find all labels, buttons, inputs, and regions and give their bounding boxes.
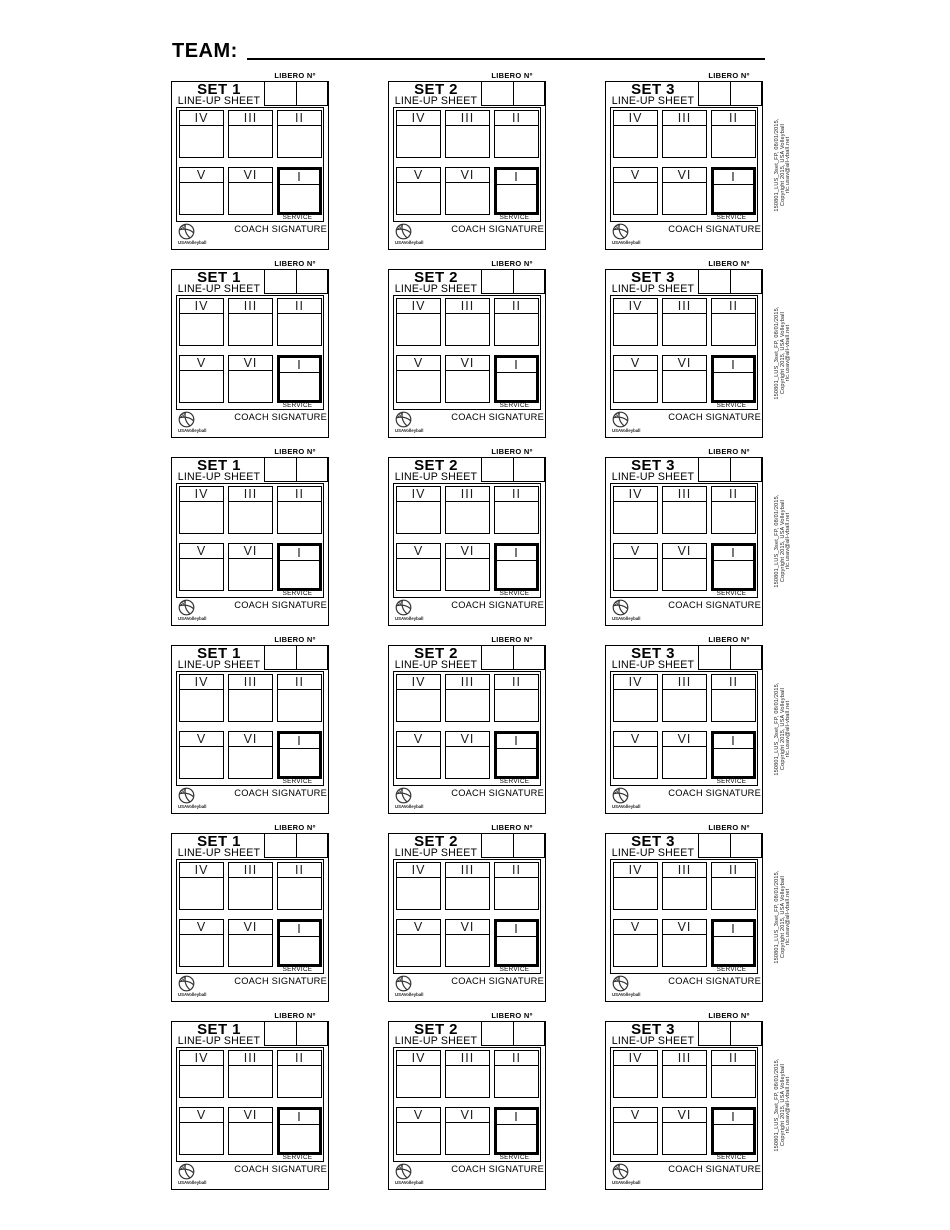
card-footer: USAVolleyball COACH SIGNATURE — [172, 598, 328, 625]
position-cell-i-service: I — [277, 731, 322, 779]
usa-volleyball-logo-text: USAVolleyball — [178, 616, 220, 621]
position-cell-i-service: I — [494, 919, 539, 967]
position-label-vi: VI — [663, 168, 706, 183]
side-note-line3: rlc.usav@all-vball.net — [786, 458, 792, 624]
card-header: SET 3 LINE-UP SHEET — [606, 646, 762, 670]
court-grid: IV III II V VI — [393, 859, 541, 974]
libero-no-label: LIBERO Nº — [263, 71, 327, 81]
libero-number-boxes — [698, 1021, 762, 1046]
position-cell-iv: IV — [396, 862, 441, 910]
position-label-i: I — [280, 358, 319, 373]
libero-no-label: LIBERO Nº — [697, 1011, 761, 1021]
coach-signature-label: COACH SIGNATURE — [668, 224, 761, 234]
lineup-card-body: SET 3 LINE-UP SHEET IV III — [605, 1021, 763, 1190]
position-cell-iv: IV — [396, 110, 441, 158]
card-header: SET 3 LINE-UP SHEET — [606, 82, 762, 106]
lineup-card-body: SET 2 LINE-UP SHEET IV III — [388, 269, 546, 438]
position-label-vi: VI — [663, 356, 706, 371]
position-cell-v: V — [179, 919, 224, 967]
position-cell-ii: II — [711, 1050, 756, 1098]
position-label-i: I — [714, 170, 753, 185]
service-label: SERVICE — [274, 1154, 321, 1161]
side-note-line3: rlc.usav@all-vball.net — [786, 834, 792, 1000]
lineup-card-body: SET 3 LINE-UP SHEET IV III — [605, 833, 763, 1002]
card-header: SET 1 LINE-UP SHEET — [172, 646, 328, 670]
court-grid: IV III II V VI — [176, 483, 324, 598]
libero-number-cell-1 — [482, 646, 514, 669]
position-cell-ii: II — [494, 298, 539, 346]
position-label-iii: III — [663, 1051, 706, 1066]
position-cell-v: V — [179, 1107, 224, 1155]
libero-number-cell-1 — [699, 270, 731, 293]
volleyball-logo-icon — [612, 411, 629, 428]
coach-signature-label: COACH SIGNATURE — [234, 224, 327, 234]
lineup-card: LIBERO Nº SET 1 LINE-UP SHEET IV — [171, 259, 329, 438]
position-cell-iv: IV — [613, 110, 658, 158]
court-row-front: V VI I — [396, 731, 539, 779]
usa-volleyball-logo-text: USAVolleyball — [395, 428, 437, 433]
libero-number-boxes — [264, 833, 328, 858]
libero-number-boxes — [698, 269, 762, 294]
position-label-iii: III — [229, 1051, 272, 1066]
lineup-card-body: SET 1 LINE-UP SHEET IV III — [171, 645, 329, 814]
libero-number-boxes — [264, 457, 328, 482]
court-grid: IV III II V VI — [610, 859, 758, 974]
coach-signature-label: COACH SIGNATURE — [668, 600, 761, 610]
usa-volleyball-logo-text: USAVolleyball — [395, 616, 437, 621]
court-grid: IV III II V VI — [610, 107, 758, 222]
side-note-line3: rlc.usav@all-vball.net — [786, 270, 792, 436]
card-header: SET 1 LINE-UP SHEET — [172, 270, 328, 294]
position-label-iii: III — [663, 675, 706, 690]
service-label: SERVICE — [274, 214, 321, 221]
position-label-vi: VI — [446, 1108, 489, 1123]
lineup-sheet-label: LINE-UP SHEET — [392, 472, 480, 483]
lineup-card: LIBERO Nº SET 3 LINE-UP SHEET IV — [605, 447, 763, 626]
lineup-sheet-label: LINE-UP SHEET — [609, 284, 697, 295]
side-note-line3: rlc.usav@all-vball.net — [786, 1022, 792, 1188]
position-cell-v: V — [179, 167, 224, 215]
card-header: SET 1 LINE-UP SHEET — [172, 1022, 328, 1046]
card-footer: USAVolleyball COACH SIGNATURE — [606, 1162, 762, 1189]
card-grid: LIBERO Nº SET 1 LINE-UP SHEET IV — [171, 71, 763, 1199]
libero-number-boxes — [698, 457, 762, 482]
lineup-sheet-label: LINE-UP SHEET — [609, 1036, 697, 1047]
position-cell-v: V — [613, 543, 658, 591]
usa-volleyball-logo-text: USAVolleyball — [178, 240, 220, 245]
position-cell-vi: VI — [445, 731, 490, 779]
position-label-vi: VI — [663, 920, 706, 935]
position-label-i: I — [280, 546, 319, 561]
usa-volleyball-logo-text: USAVolleyball — [395, 240, 437, 245]
position-cell-i-service: I — [494, 167, 539, 215]
card-header: SET 3 LINE-UP SHEET — [606, 270, 762, 294]
usa-volleyball-logo-text: USAVolleyball — [612, 1180, 654, 1185]
position-cell-iii: III — [662, 1050, 707, 1098]
coach-signature-label: COACH SIGNATURE — [234, 1164, 327, 1174]
position-cell-v: V — [179, 543, 224, 591]
position-label-ii: II — [712, 1051, 755, 1066]
position-label-v: V — [614, 732, 657, 747]
position-cell-iii: III — [662, 862, 707, 910]
court-grid: IV III II V VI — [610, 483, 758, 598]
lineup-card: LIBERO Nº SET 1 LINE-UP SHEET IV — [171, 447, 329, 626]
position-label-ii: II — [712, 299, 755, 314]
position-cell-vi: VI — [662, 731, 707, 779]
position-label-v: V — [397, 168, 440, 183]
libero-number-boxes — [698, 833, 762, 858]
service-label: SERVICE — [491, 966, 538, 973]
lineup-card-body: SET 1 LINE-UP SHEET IV III — [171, 269, 329, 438]
service-label: SERVICE — [491, 778, 538, 785]
card-title-block: SET 1 LINE-UP SHEET — [175, 647, 263, 671]
sheet-row: LIBERO Nº SET 1 LINE-UP SHEET IV — [171, 447, 763, 626]
position-label-iv: IV — [397, 299, 440, 314]
usa-volleyball-logo-text: USAVolleyball — [612, 804, 654, 809]
position-label-v: V — [614, 1108, 657, 1123]
position-label-iii: III — [229, 111, 272, 126]
position-cell-iii: III — [228, 862, 273, 910]
position-cell-v: V — [396, 167, 441, 215]
coach-signature-label: COACH SIGNATURE — [234, 976, 327, 986]
lineup-card: LIBERO Nº SET 2 LINE-UP SHEET IV — [388, 635, 546, 814]
position-label-ii: II — [278, 111, 321, 126]
service-label: SERVICE — [708, 214, 755, 221]
court-row-back: IV III II — [613, 862, 756, 910]
libero-number-boxes — [481, 1021, 545, 1046]
position-label-i: I — [497, 358, 536, 373]
position-label-v: V — [614, 920, 657, 935]
usa-volleyball-logo: USAVolleyball — [178, 975, 220, 997]
position-cell-ii: II — [711, 110, 756, 158]
position-label-i: I — [280, 1110, 319, 1125]
service-label: SERVICE — [708, 590, 755, 597]
position-cell-iii: III — [228, 486, 273, 534]
coach-signature-label: COACH SIGNATURE — [451, 788, 544, 798]
position-label-iv: IV — [180, 299, 223, 314]
position-label-i: I — [714, 358, 753, 373]
court-row-front: V VI I — [613, 1107, 756, 1155]
position-label-iv: IV — [180, 1051, 223, 1066]
court-row-front: V VI I — [396, 543, 539, 591]
court-row-back: IV III II — [396, 298, 539, 346]
libero-number-boxes — [698, 81, 762, 106]
lineup-sheet-label: LINE-UP SHEET — [392, 848, 480, 859]
position-label-iii: III — [663, 487, 706, 502]
court-row-front: V VI I — [179, 167, 322, 215]
volleyball-logo-icon — [612, 223, 629, 240]
position-cell-iii: III — [228, 1050, 273, 1098]
position-label-vi: VI — [446, 920, 489, 935]
position-label-iii: III — [446, 487, 489, 502]
lineup-sheet-label: LINE-UP SHEET — [175, 848, 263, 859]
lineup-card-body: SET 2 LINE-UP SHEET IV III — [388, 81, 546, 250]
position-label-i: I — [714, 546, 753, 561]
lineup-card: LIBERO Nº SET 3 LINE-UP SHEET IV — [605, 71, 763, 250]
usa-volleyball-logo: USAVolleyball — [395, 975, 437, 997]
court-row-front: V VI I — [396, 355, 539, 403]
lineup-card-body: SET 1 LINE-UP SHEET IV III — [171, 833, 329, 1002]
position-label-vi: VI — [663, 544, 706, 559]
position-label-ii: II — [495, 1051, 538, 1066]
volleyball-logo-icon — [395, 599, 412, 616]
lineup-sheet-label: LINE-UP SHEET — [609, 660, 697, 671]
position-cell-ii: II — [494, 486, 539, 534]
lineup-card: LIBERO Nº SET 3 LINE-UP SHEET IV — [605, 1011, 763, 1190]
position-label-v: V — [180, 356, 223, 371]
card-header: SET 2 LINE-UP SHEET — [389, 646, 545, 670]
card-header: SET 2 LINE-UP SHEET — [389, 82, 545, 106]
position-cell-ii: II — [277, 298, 322, 346]
position-label-vi: VI — [229, 356, 272, 371]
court-row-front: V VI I — [179, 543, 322, 591]
card-footer: USAVolleyball COACH SIGNATURE — [389, 974, 545, 1001]
court-row-back: IV III II — [396, 674, 539, 722]
libero-no-label: LIBERO Nº — [263, 635, 327, 645]
position-label-v: V — [397, 356, 440, 371]
position-cell-vi: VI — [228, 543, 273, 591]
lineup-card: LIBERO Nº SET 1 LINE-UP SHEET IV — [171, 635, 329, 814]
service-label: SERVICE — [491, 402, 538, 409]
lineup-card-body: SET 3 LINE-UP SHEET IV III — [605, 269, 763, 438]
court-row-front: V VI I — [613, 543, 756, 591]
position-cell-iii: III — [662, 298, 707, 346]
position-label-v: V — [180, 920, 223, 935]
card-footer: USAVolleyball COACH SIGNATURE — [606, 786, 762, 813]
sheet-row: LIBERO Nº SET 1 LINE-UP SHEET IV — [171, 1011, 763, 1190]
position-label-ii: II — [278, 487, 321, 502]
position-cell-iv: IV — [613, 862, 658, 910]
position-label-ii: II — [495, 111, 538, 126]
card-title-block: SET 2 LINE-UP SHEET — [392, 1023, 480, 1047]
position-label-v: V — [397, 544, 440, 559]
position-cell-ii: II — [494, 862, 539, 910]
position-label-iv: IV — [397, 1051, 440, 1066]
libero-number-cell-2 — [514, 1022, 545, 1045]
lineup-card: LIBERO Nº SET 3 LINE-UP SHEET IV — [605, 635, 763, 814]
card-header: SET 2 LINE-UP SHEET — [389, 834, 545, 858]
lineup-sheet-label: LINE-UP SHEET — [175, 660, 263, 671]
copyright-side-note: 150801_LUS_3set_FP, 08/01/2015, Copyrigh… — [775, 834, 793, 1000]
position-cell-vi: VI — [445, 355, 490, 403]
usa-volleyball-logo: USAVolleyball — [612, 599, 654, 621]
position-cell-iv: IV — [179, 862, 224, 910]
coach-signature-label: COACH SIGNATURE — [668, 976, 761, 986]
lineup-card: LIBERO Nº SET 2 LINE-UP SHEET IV — [388, 1011, 546, 1190]
lineup-sheet-label: LINE-UP SHEET — [392, 284, 480, 295]
court-row-front: V VI I — [179, 731, 322, 779]
volleyball-logo-icon — [612, 599, 629, 616]
position-cell-vi: VI — [662, 543, 707, 591]
coach-signature-label: COACH SIGNATURE — [451, 224, 544, 234]
position-label-v: V — [180, 1108, 223, 1123]
usa-volleyball-logo: USAVolleyball — [395, 599, 437, 621]
libero-number-cell-1 — [699, 82, 731, 105]
libero-number-cell-1 — [265, 834, 297, 857]
card-footer: USAVolleyball COACH SIGNATURE — [389, 410, 545, 437]
position-label-ii: II — [712, 111, 755, 126]
position-cell-v: V — [613, 919, 658, 967]
position-cell-iv: IV — [179, 1050, 224, 1098]
lineup-sheet-label: LINE-UP SHEET — [609, 472, 697, 483]
side-note-line3: rlc.usav@all-vball.net — [786, 646, 792, 812]
position-label-ii: II — [712, 675, 755, 690]
lineup-card-body: SET 1 LINE-UP SHEET IV III — [171, 81, 329, 250]
position-label-iii: III — [446, 1051, 489, 1066]
lineup-sheet-label: LINE-UP SHEET — [392, 660, 480, 671]
libero-number-boxes — [264, 81, 328, 106]
position-cell-vi: VI — [445, 1107, 490, 1155]
position-cell-v: V — [396, 731, 441, 779]
libero-no-label: LIBERO Nº — [697, 447, 761, 457]
court-row-back: IV III II — [613, 674, 756, 722]
position-label-iii: III — [229, 487, 272, 502]
position-cell-i-service: I — [494, 1107, 539, 1155]
position-cell-v: V — [396, 543, 441, 591]
position-label-ii: II — [712, 487, 755, 502]
position-cell-v: V — [613, 1107, 658, 1155]
coach-signature-label: COACH SIGNATURE — [668, 412, 761, 422]
position-label-v: V — [397, 1108, 440, 1123]
court-grid: IV III II V VI — [176, 1047, 324, 1162]
coach-signature-label: COACH SIGNATURE — [668, 1164, 761, 1174]
position-label-ii: II — [495, 299, 538, 314]
volleyball-logo-icon — [178, 411, 195, 428]
lineup-sheet-label: LINE-UP SHEET — [392, 1036, 480, 1047]
court-row-back: IV III II — [179, 674, 322, 722]
card-header: SET 3 LINE-UP SHEET — [606, 458, 762, 482]
position-cell-ii: II — [711, 674, 756, 722]
position-label-v: V — [614, 168, 657, 183]
position-cell-iii: III — [445, 486, 490, 534]
position-cell-ii: II — [711, 486, 756, 534]
position-label-iii: III — [446, 675, 489, 690]
coach-signature-label: COACH SIGNATURE — [451, 600, 544, 610]
service-label: SERVICE — [708, 966, 755, 973]
service-label: SERVICE — [274, 590, 321, 597]
position-label-iii: III — [446, 111, 489, 126]
position-cell-i-service: I — [711, 167, 756, 215]
position-label-iii: III — [446, 863, 489, 878]
position-cell-ii: II — [277, 674, 322, 722]
lineup-sheet-label: LINE-UP SHEET — [175, 96, 263, 107]
court-grid: IV III II V VI — [176, 671, 324, 786]
libero-number-boxes — [264, 269, 328, 294]
position-cell-i-service: I — [711, 919, 756, 967]
card-footer: USAVolleyball COACH SIGNATURE — [389, 222, 545, 249]
court-grid: IV III II V VI — [393, 295, 541, 410]
lineup-card-body: SET 1 LINE-UP SHEET IV III — [171, 1021, 329, 1190]
usa-volleyball-logo-text: USAVolleyball — [612, 616, 654, 621]
position-label-iv: IV — [614, 487, 657, 502]
libero-number-boxes — [481, 269, 545, 294]
position-label-iv: IV — [180, 111, 223, 126]
libero-number-cell-1 — [265, 270, 297, 293]
court-row-back: IV III II — [613, 1050, 756, 1098]
position-label-ii: II — [278, 299, 321, 314]
position-cell-i-service: I — [494, 543, 539, 591]
usa-volleyball-logo: USAVolleyball — [395, 1163, 437, 1185]
position-label-ii: II — [495, 487, 538, 502]
position-cell-iv: IV — [179, 110, 224, 158]
lineup-sheet-label: LINE-UP SHEET — [609, 848, 697, 859]
position-label-i: I — [497, 546, 536, 561]
libero-number-boxes — [481, 457, 545, 482]
service-label: SERVICE — [708, 402, 755, 409]
position-label-ii: II — [278, 1051, 321, 1066]
team-header: TEAM: — [172, 40, 765, 62]
libero-number-cell-2 — [297, 270, 328, 293]
libero-number-cell-2 — [514, 646, 545, 669]
card-title-block: SET 3 LINE-UP SHEET — [609, 271, 697, 295]
usa-volleyball-logo-text: USAVolleyball — [395, 804, 437, 809]
position-label-ii: II — [495, 863, 538, 878]
position-label-v: V — [180, 732, 223, 747]
position-cell-iii: III — [445, 1050, 490, 1098]
lineup-card-body: SET 2 LINE-UP SHEET IV III — [388, 1021, 546, 1190]
position-cell-vi: VI — [445, 919, 490, 967]
position-label-iv: IV — [614, 111, 657, 126]
position-cell-iii: III — [228, 110, 273, 158]
position-cell-vi: VI — [228, 731, 273, 779]
position-label-iv: IV — [397, 863, 440, 878]
court-row-front: V VI I — [613, 919, 756, 967]
position-cell-ii: II — [494, 110, 539, 158]
position-cell-i-service: I — [277, 1107, 322, 1155]
position-cell-iii: III — [445, 298, 490, 346]
volleyball-logo-icon — [178, 975, 195, 992]
position-label-i: I — [714, 922, 753, 937]
lineup-card: LIBERO Nº SET 2 LINE-UP SHEET IV — [388, 259, 546, 438]
card-title-block: SET 2 LINE-UP SHEET — [392, 271, 480, 295]
position-label-iii: III — [663, 299, 706, 314]
libero-number-boxes — [481, 645, 545, 670]
position-cell-vi: VI — [228, 1107, 273, 1155]
libero-number-cell-2 — [731, 834, 762, 857]
card-header: SET 3 LINE-UP SHEET — [606, 834, 762, 858]
libero-number-boxes — [481, 833, 545, 858]
position-cell-vi: VI — [445, 167, 490, 215]
court-row-back: IV III II — [396, 862, 539, 910]
libero-no-label: LIBERO Nº — [697, 635, 761, 645]
position-cell-i-service: I — [277, 543, 322, 591]
position-cell-iv: IV — [396, 674, 441, 722]
usa-volleyball-logo: USAVolleyball — [395, 223, 437, 245]
lineup-card: LIBERO Nº SET 1 LINE-UP SHEET IV — [171, 1011, 329, 1190]
usa-volleyball-logo: USAVolleyball — [612, 975, 654, 997]
position-label-v: V — [614, 544, 657, 559]
position-cell-iv: IV — [396, 486, 441, 534]
card-footer: USAVolleyball COACH SIGNATURE — [389, 1162, 545, 1189]
libero-no-label: LIBERO Nº — [480, 823, 544, 833]
position-cell-v: V — [396, 355, 441, 403]
libero-number-cell-2 — [297, 82, 328, 105]
coach-signature-label: COACH SIGNATURE — [234, 412, 327, 422]
position-cell-v: V — [179, 355, 224, 403]
position-cell-iv: IV — [179, 298, 224, 346]
position-cell-iii: III — [662, 110, 707, 158]
position-cell-v: V — [179, 731, 224, 779]
position-cell-ii: II — [277, 110, 322, 158]
court-row-back: IV III II — [613, 110, 756, 158]
court-grid: IV III II V VI — [610, 1047, 758, 1162]
card-header: SET 2 LINE-UP SHEET — [389, 1022, 545, 1046]
libero-number-cell-2 — [514, 834, 545, 857]
position-cell-iii: III — [445, 110, 490, 158]
libero-number-boxes — [264, 1021, 328, 1046]
card-title-block: SET 1 LINE-UP SHEET — [175, 835, 263, 859]
position-cell-i-service: I — [711, 543, 756, 591]
